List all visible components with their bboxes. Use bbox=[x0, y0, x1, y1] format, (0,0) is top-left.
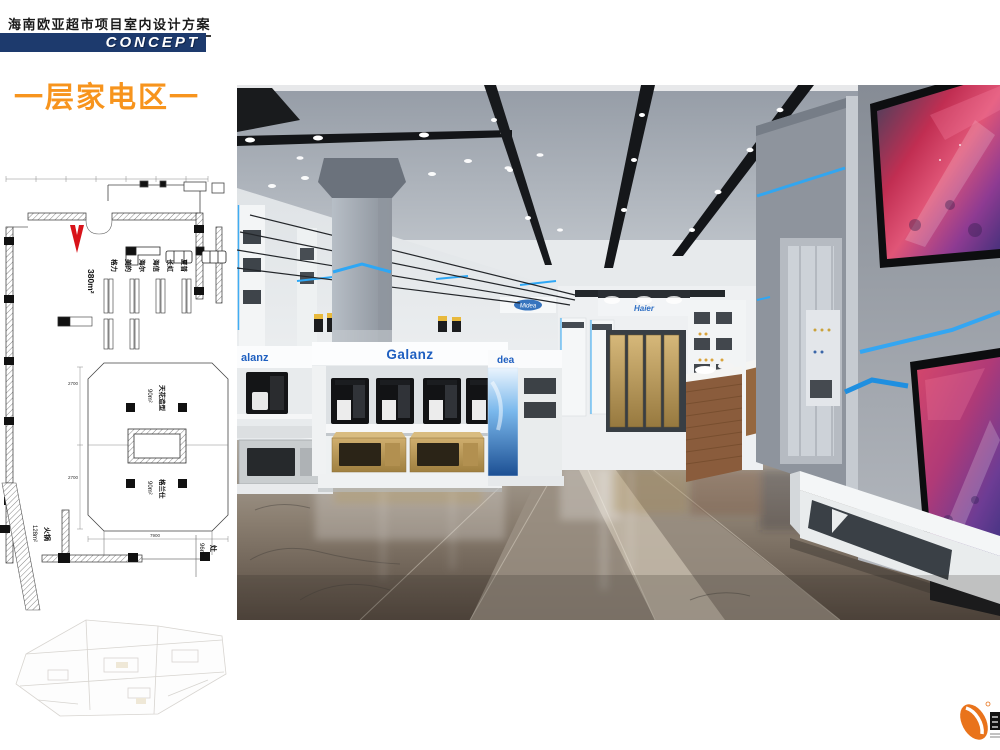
haier-sign: Haier bbox=[598, 290, 690, 316]
svg-text:海尔: 海尔 bbox=[138, 259, 147, 273]
plan-area-label: 380m² bbox=[86, 269, 96, 294]
midea-sign: Midea bbox=[500, 297, 556, 313]
svg-text:天花造型: 天花造型 bbox=[158, 385, 167, 412]
faint-overview-plan bbox=[8, 610, 233, 728]
plan-top-corridor bbox=[108, 181, 224, 213]
svg-text:96m²: 96m² bbox=[198, 543, 204, 557]
plan-shelving bbox=[58, 279, 191, 349]
midea-logo: Midea bbox=[520, 304, 537, 310]
svg-text:90m²: 90m² bbox=[146, 389, 152, 403]
floor-plan-drawing: 380m² 格力 美的 海尔 海信 长虹 夏普 bbox=[0, 167, 235, 613]
company-logo bbox=[944, 694, 1000, 748]
svg-text:海信: 海信 bbox=[152, 259, 161, 273]
svg-text:2700: 2700 bbox=[68, 475, 79, 480]
tv-display-upper bbox=[870, 85, 1000, 268]
floor-vignette bbox=[237, 575, 1000, 620]
svg-text:2700: 2700 bbox=[68, 381, 79, 386]
concept-banner: CONCEPT bbox=[0, 33, 206, 52]
svg-text:长虹: 长虹 bbox=[166, 259, 175, 273]
svg-text:90m²: 90m² bbox=[146, 481, 152, 495]
right-counter-sign: dea bbox=[497, 355, 515, 366]
section-title-dash: 一 bbox=[169, 82, 200, 114]
glass-partition bbox=[756, 96, 864, 496]
galanz-sign: Galanz bbox=[386, 347, 433, 362]
interior-render: Haier Midea bbox=[237, 85, 1000, 620]
presentation-slide: 海南欧亚超市项目室内设计方案 CONCEPT 一层家电区一 bbox=[0, 0, 1000, 750]
svg-text:美的: 美的 bbox=[124, 259, 133, 273]
svg-text:夏普: 夏普 bbox=[180, 259, 189, 273]
svg-text:格兰仕: 格兰仕 bbox=[158, 479, 167, 499]
svg-text:128m²: 128m² bbox=[31, 525, 37, 542]
svg-text:灶: 灶 bbox=[209, 545, 218, 552]
logo-registered-mark bbox=[986, 702, 990, 706]
haier-logo: Haier bbox=[634, 304, 655, 313]
concept-banner-label: CONCEPT bbox=[0, 33, 206, 52]
svg-text:火锅: 火锅 bbox=[43, 527, 52, 541]
plan-octagon-zone bbox=[88, 363, 228, 577]
svg-text:7900: 7900 bbox=[150, 533, 161, 538]
svg-text:格力: 格力 bbox=[110, 259, 119, 273]
right-counter-unit: dea bbox=[488, 350, 564, 486]
plan-location-arrow bbox=[70, 225, 84, 253]
left-counter-sign: alanz bbox=[241, 352, 269, 364]
section-title: 一层家电区一 bbox=[14, 74, 200, 116]
galanz-counter-unit: Galanz bbox=[312, 342, 508, 492]
